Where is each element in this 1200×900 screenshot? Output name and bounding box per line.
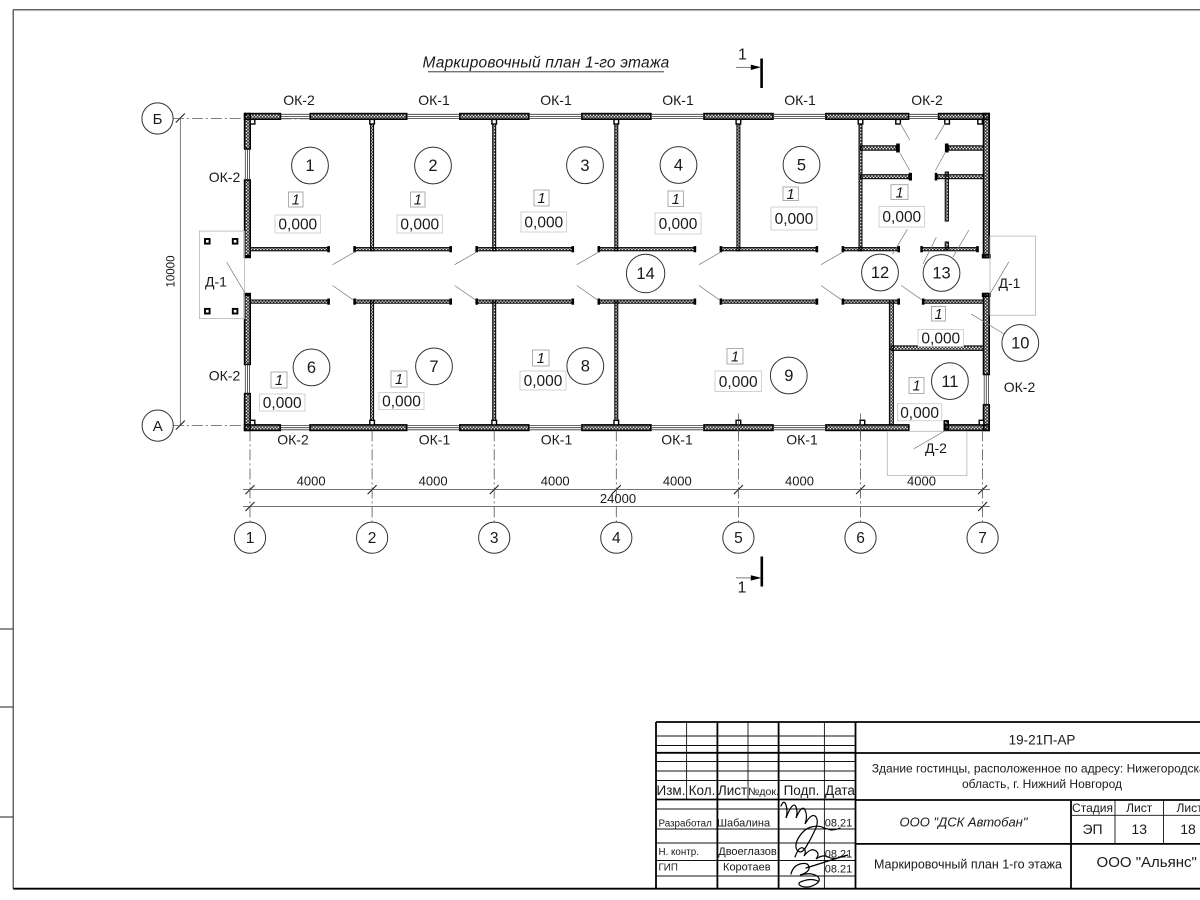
- svg-text:Д-2: Д-2: [925, 440, 947, 456]
- svg-text:Д-1: Д-1: [999, 275, 1021, 291]
- svg-text:ОК-1: ОК-1: [662, 92, 694, 108]
- svg-text:№док.: №док.: [748, 786, 779, 798]
- svg-text:1: 1: [934, 307, 942, 323]
- svg-text:ОК-2: ОК-2: [283, 92, 315, 108]
- svg-text:0,000: 0,000: [524, 373, 563, 390]
- svg-text:1: 1: [414, 193, 422, 209]
- svg-text:1: 1: [292, 193, 300, 209]
- svg-text:Двоеглазов: Двоеглазов: [718, 846, 777, 858]
- svg-text:5: 5: [734, 530, 743, 547]
- svg-text:13: 13: [1131, 821, 1147, 837]
- svg-text:1: 1: [537, 351, 545, 367]
- svg-text:Маркировочный план 1-го этажа: Маркировочный план 1-го этажа: [874, 857, 1062, 871]
- svg-text:0,000: 0,000: [775, 211, 814, 228]
- svg-text:ОК-2: ОК-2: [209, 368, 241, 384]
- svg-text:Б: Б: [153, 111, 163, 128]
- svg-text:5: 5: [797, 156, 806, 174]
- svg-text:1: 1: [895, 185, 903, 201]
- svg-text:0,000: 0,000: [921, 331, 960, 348]
- svg-text:ГИП: ГИП: [659, 862, 678, 873]
- svg-text:0,000: 0,000: [524, 215, 563, 232]
- svg-text:0,000: 0,000: [659, 216, 698, 233]
- svg-text:4000: 4000: [663, 474, 692, 489]
- svg-text:ОК-1: ОК-1: [784, 92, 816, 108]
- svg-text:ОК-1: ОК-1: [418, 92, 450, 108]
- svg-text:4000: 4000: [419, 474, 448, 489]
- svg-text:4000: 4000: [907, 474, 936, 489]
- svg-text:1: 1: [246, 530, 255, 547]
- svg-text:4000: 4000: [785, 474, 814, 489]
- svg-text:Д-1: Д-1: [205, 274, 227, 290]
- svg-text:24000: 24000: [600, 491, 636, 506]
- svg-text:Кол.: Кол.: [689, 783, 716, 798]
- svg-text:19-21П-АР: 19-21П-АР: [1009, 732, 1076, 747]
- svg-text:Н. контр.: Н. контр.: [659, 847, 699, 858]
- svg-text:4000: 4000: [541, 474, 570, 489]
- svg-text:14: 14: [636, 265, 654, 283]
- svg-text:Здание гостинцы, расположенное: Здание гостинцы, расположенное по адресу…: [872, 761, 1200, 775]
- svg-text:А: А: [153, 418, 163, 435]
- svg-text:ООО "ДСК Автобан": ООО "ДСК Автобан": [900, 815, 1029, 830]
- svg-text:1: 1: [537, 191, 545, 207]
- svg-text:4: 4: [674, 157, 683, 175]
- svg-text:13: 13: [932, 265, 950, 283]
- svg-text:Изм.: Изм.: [657, 783, 686, 798]
- svg-text:Маркировочный план 1-го этажа: Маркировочный план 1-го этажа: [422, 55, 669, 72]
- svg-text:ОК-2: ОК-2: [911, 92, 943, 108]
- svg-text:Коротаев: Коротаев: [723, 861, 771, 873]
- svg-text:ОК-1: ОК-1: [541, 431, 573, 447]
- svg-text:Шабалина: Шабалина: [717, 818, 771, 830]
- svg-text:0,000: 0,000: [382, 394, 421, 411]
- svg-text:1: 1: [731, 349, 739, 365]
- svg-text:Лист: Лист: [1126, 801, 1153, 815]
- svg-text:ЭП: ЭП: [1082, 821, 1102, 837]
- svg-text:1: 1: [395, 372, 403, 388]
- svg-text:ОК-1: ОК-1: [540, 92, 572, 108]
- svg-text:3: 3: [490, 530, 499, 547]
- svg-text:9: 9: [784, 367, 793, 385]
- svg-text:11: 11: [941, 373, 958, 391]
- svg-text:1: 1: [672, 192, 680, 208]
- svg-text:6: 6: [856, 530, 865, 547]
- svg-text:Подп.: Подп.: [784, 783, 820, 798]
- svg-text:Дата: Дата: [825, 783, 855, 798]
- svg-text:Лист: Лист: [718, 783, 747, 798]
- svg-text:ОК-2: ОК-2: [277, 431, 309, 447]
- svg-text:7: 7: [429, 358, 438, 376]
- svg-text:12: 12: [871, 264, 889, 282]
- svg-text:0,000: 0,000: [400, 217, 439, 234]
- svg-text:2: 2: [368, 530, 377, 547]
- svg-text:2: 2: [428, 157, 437, 175]
- svg-text:1: 1: [912, 379, 920, 395]
- svg-text:0,000: 0,000: [900, 405, 939, 422]
- svg-text:4: 4: [612, 530, 621, 547]
- svg-text:08.21: 08.21: [825, 818, 853, 830]
- svg-text:0,000: 0,000: [719, 374, 758, 391]
- svg-text:08.21: 08.21: [825, 864, 853, 876]
- svg-text:0,000: 0,000: [278, 217, 317, 234]
- svg-text:6: 6: [307, 359, 316, 377]
- svg-text:1: 1: [738, 47, 747, 64]
- svg-text:1: 1: [738, 580, 747, 597]
- svg-text:Разработал: Разработал: [659, 819, 713, 830]
- svg-text:3: 3: [580, 157, 589, 175]
- svg-text:Стадия: Стадия: [1072, 801, 1113, 815]
- svg-text:1: 1: [305, 157, 314, 175]
- svg-text:10: 10: [1011, 335, 1029, 353]
- svg-text:18: 18: [1180, 821, 1196, 837]
- svg-text:ОК-1: ОК-1: [786, 431, 818, 447]
- svg-text:08.21: 08.21: [825, 849, 853, 861]
- svg-text:4000: 4000: [297, 474, 326, 489]
- svg-text:0,000: 0,000: [882, 209, 921, 226]
- svg-text:Листов: Листов: [1177, 801, 1200, 815]
- svg-text:1: 1: [787, 187, 795, 203]
- svg-text:1: 1: [275, 373, 283, 389]
- svg-text:ООО "Альянс": ООО "Альянс": [1097, 854, 1197, 871]
- svg-text:ОК-1: ОК-1: [661, 431, 693, 447]
- svg-text:8: 8: [581, 358, 590, 376]
- svg-text:область, г. Нижний Новгород: область, г. Нижний Новгород: [962, 777, 1122, 791]
- svg-text:ОК-2: ОК-2: [209, 169, 241, 185]
- svg-text:7: 7: [978, 530, 987, 547]
- svg-text:10000: 10000: [166, 256, 178, 288]
- svg-text:ОК-2: ОК-2: [1004, 379, 1036, 395]
- svg-text:0,000: 0,000: [263, 395, 302, 412]
- svg-text:ОК-1: ОК-1: [419, 431, 451, 447]
